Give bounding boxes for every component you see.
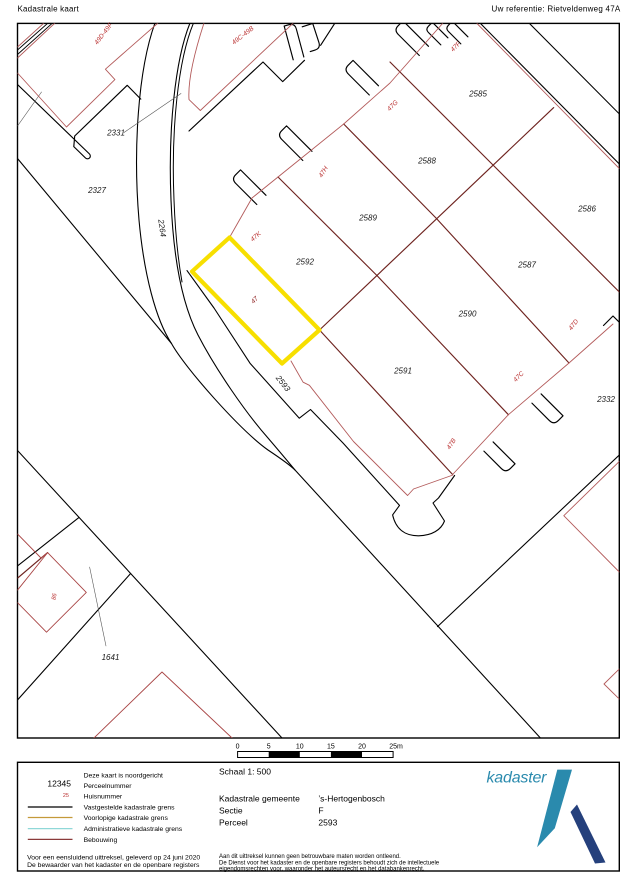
svg-text:12345: 12345	[47, 779, 71, 789]
svg-text:2588: 2588	[417, 157, 436, 166]
svg-text:Kadastrale gemeente: Kadastrale gemeente	[219, 794, 300, 804]
svg-text:2331: 2331	[106, 129, 125, 138]
svg-text:Voorlopige kadastrale grens: Voorlopige kadastrale grens	[84, 815, 169, 822]
svg-text:15: 15	[327, 744, 335, 751]
svg-text:5: 5	[267, 744, 271, 751]
svg-text:Schaal 1: 500: Schaal 1: 500	[219, 767, 271, 777]
svg-text:1641: 1641	[102, 653, 120, 662]
svg-text:Aan dit uittreksel kunnen geen: Aan dit uittreksel kunnen geen betrouwba…	[219, 854, 401, 860]
svg-text:2590: 2590	[458, 310, 477, 319]
svg-text:kadaster: kadaster	[487, 770, 548, 787]
svg-text:Uw referentie: Rietveldenweg 4: Uw referentie: Rietveldenweg 47A	[492, 5, 621, 14]
svg-text:De bewaarder van het kadaster: De bewaarder van het kadaster en de open…	[27, 862, 200, 869]
svg-text:Voor een eensluidend uittrekse: Voor een eensluidend uittreksel, gelever…	[27, 855, 200, 862]
svg-text:2332: 2332	[596, 395, 615, 404]
svg-text:20: 20	[358, 744, 366, 751]
svg-text:Perceelnummer: Perceelnummer	[84, 783, 133, 790]
svg-text:’s-Hertogenbosch: ’s-Hertogenbosch	[318, 794, 385, 804]
svg-text:25: 25	[63, 793, 69, 799]
svg-text:Perceel: Perceel	[219, 818, 248, 828]
svg-text:De Dienst voor het kadaster en: De Dienst voor het kadaster en de openba…	[219, 860, 440, 866]
svg-text:2589: 2589	[358, 214, 377, 223]
svg-text:Administratieve kadastrale gre: Administratieve kadastrale grens	[84, 826, 183, 833]
svg-text:2592: 2592	[295, 258, 314, 267]
svg-text:Bebouwing: Bebouwing	[84, 837, 118, 844]
svg-text:F: F	[318, 806, 323, 816]
svg-text:Vastgestelde kadastrale grens: Vastgestelde kadastrale grens	[84, 805, 176, 812]
svg-text:2327: 2327	[87, 186, 106, 195]
svg-text:0: 0	[236, 744, 240, 751]
svg-text:2587: 2587	[517, 261, 536, 270]
svg-text:Deze kaart is noordgericht: Deze kaart is noordgericht	[84, 773, 163, 780]
svg-text:Sectie: Sectie	[219, 806, 243, 816]
svg-text:25m: 25m	[389, 744, 403, 751]
svg-text:2586: 2586	[577, 205, 596, 214]
svg-text:10: 10	[296, 744, 304, 751]
svg-text:2585: 2585	[468, 90, 487, 99]
svg-text:Kadastrale kaart: Kadastrale kaart	[18, 5, 80, 14]
svg-text:2591: 2591	[393, 367, 412, 376]
svg-text:2593: 2593	[318, 818, 337, 828]
svg-text:Huisnummer: Huisnummer	[84, 793, 123, 800]
svg-text:eigendomsrechten voor, waarond: eigendomsrechten voor, waaronder het aut…	[219, 866, 425, 872]
